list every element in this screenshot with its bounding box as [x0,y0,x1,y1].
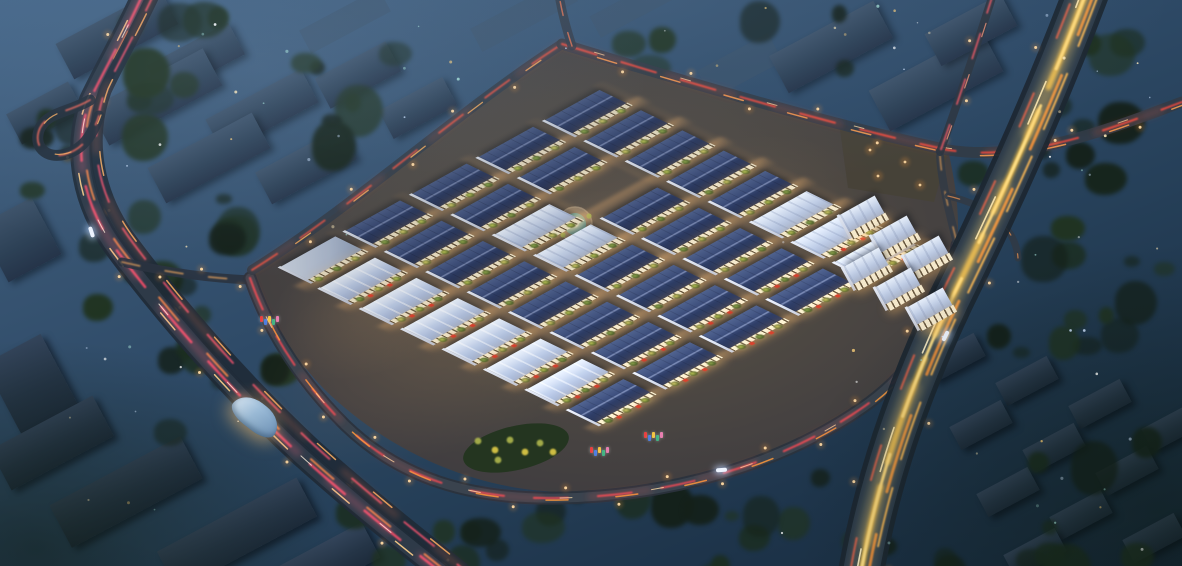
park-tree [703,189,715,195]
park-tree [437,336,449,342]
park-tree [549,145,561,151]
light-trail [85,0,452,566]
tree-canopy [486,539,509,561]
park-tree [482,182,494,188]
park-tree [561,397,573,403]
background-city-blocks [0,0,1182,566]
light-speck [1078,236,1080,238]
red-canopy [616,415,623,419]
background-building [256,522,381,566]
light-trail [250,245,957,498]
light-speck [237,421,239,423]
tree-canopy [122,114,168,160]
warehouse-building [769,268,850,311]
red-canopy [882,268,889,272]
flag [268,316,271,322]
road-surface [940,156,957,243]
street-lamp-glow [718,479,727,488]
light-speck [69,417,71,419]
tree-canopy [1124,256,1140,267]
light-trail [250,245,957,498]
park-tree [760,287,772,293]
tree-canopy [461,518,501,547]
background-building [922,333,985,383]
park-tree [754,333,766,339]
background-building [1122,513,1182,563]
street-lamp [906,330,909,333]
park-street-glow [419,157,775,354]
light-trail [81,0,448,566]
street-lamp [463,478,466,481]
street-lamp [1034,46,1037,49]
park-tree [391,276,403,282]
tree-canopy [291,53,321,73]
light-speck [404,116,406,118]
street-lamp [118,275,121,278]
park-tree [627,360,639,366]
park-tree [739,169,751,175]
tree-canopy [1051,216,1085,241]
connector-east [940,156,957,243]
street-lamp-glow [618,67,627,76]
park-tree [563,310,575,316]
tree-canopy [209,223,246,256]
light-trail [252,247,959,500]
tree-canopy [208,7,229,29]
warehouse-building [511,281,592,324]
tree-canopy [522,512,565,542]
red-canopy [552,364,559,368]
light-speck [263,102,265,104]
street-lamp [920,327,923,330]
red-canopy [682,378,689,382]
background-building [697,33,783,99]
multistory-building [537,224,618,267]
light-speck [1081,169,1083,171]
tree-canopy [471,96,512,139]
warehouse-building [429,241,510,284]
light-speck [128,345,131,348]
flatted-factory-building [321,258,402,301]
light-speck [403,67,406,70]
street-lamp-glow [924,419,933,428]
street-lamp-glow [985,278,994,287]
red-canopy [409,314,416,318]
light-speck [716,64,719,67]
flag [660,432,663,438]
street-lamp-glow [903,378,912,387]
light-trail [940,0,995,152]
street-lamp-glow [347,185,356,194]
park-tree [354,296,366,302]
background-building [0,395,114,490]
light-speck [1060,477,1063,480]
light-speck [1104,134,1107,137]
road-surface [558,0,572,46]
street-lamp-glow [100,98,109,107]
park-tree [331,266,343,272]
tree-canopy [262,353,301,386]
tree-canopy [1013,347,1030,358]
street-lamp-glow [105,206,114,215]
street-lamp-glow [155,273,164,282]
tree-canopy [1064,310,1087,330]
red-canopy [428,303,435,307]
park-tree [545,320,557,326]
boulevard-west-second [96,0,466,566]
street-lamp-glow [745,104,754,113]
street-lamp [1070,129,1073,132]
tree-canopy [1066,142,1096,168]
street-lamp [446,559,449,562]
park-tree [636,226,648,232]
tree-canopy [651,483,694,528]
tree-canopy [1098,102,1145,145]
park-tree [395,316,407,322]
highway-ramp-east [948,196,1018,258]
light-trail [942,0,997,153]
tree-canopy [128,93,152,109]
street-lamp-glow [903,327,912,336]
tree-canopy [1077,32,1101,56]
park-tree [797,266,809,272]
tree-canopy [536,497,566,526]
warehouse-building [686,228,767,271]
light-trail [96,0,463,566]
light-speck [449,61,452,64]
light-trail [561,42,1181,151]
tree-canopy [1049,326,1080,360]
street-lamp [689,72,692,75]
flag [648,435,651,441]
light-speck [159,143,162,146]
light-speck [852,349,855,352]
light-speck [1095,373,1098,376]
park-tree [620,149,632,155]
east-multistory-building [908,288,953,325]
tree-canopy [1021,236,1067,283]
park-tree [515,336,527,342]
street-light-glow [197,128,743,532]
street-lamp [260,329,263,332]
red-canopy [533,375,540,379]
flag [602,450,605,456]
park-tree [820,297,832,303]
light-trail [558,0,572,46]
park-tree [414,306,426,312]
tree-canopy [743,496,780,538]
tree-canopy [335,85,383,137]
tree-canopy [935,555,966,566]
park-tree [588,253,600,259]
park-tree [455,326,467,332]
flag [652,432,655,438]
street-lamp-glow [917,324,926,333]
street-lamp [305,363,308,366]
tree-canopy [1073,337,1102,356]
park-street-glow [527,117,872,286]
plaza-tree [560,232,565,237]
flatted-factory-building [362,278,443,321]
edge-road-northeast [561,42,1182,156]
street-lamp-glow [63,153,72,162]
light-trail [252,44,562,270]
park-tree [845,240,857,246]
background-building [205,69,318,153]
light-speck [346,234,348,236]
flag [264,319,267,325]
light-trail [860,0,1089,566]
vehicle [716,468,727,473]
vehicle [941,330,949,342]
park-tree [735,344,747,350]
light-speck [1089,174,1091,176]
street-lamp-glow [816,440,825,449]
street-lamp [764,447,767,450]
light-speck [764,7,766,9]
warehouse-building [412,164,493,207]
warehouse-building [454,184,535,227]
light-speck [135,411,137,413]
park-tree [349,255,361,261]
park-tree [623,320,635,326]
tree-canopy [1016,549,1047,566]
street-lamp-glow [663,472,672,481]
street-lamp [1054,139,1057,142]
park-ground [250,44,958,492]
multistory-building [752,191,833,234]
park-tree [604,330,616,336]
light-speck [1040,440,1042,442]
warehouse-grid [258,16,1100,457]
park-tree [480,269,492,275]
red-canopy [707,321,714,325]
park-tree [445,202,457,208]
garden-tree [475,438,482,445]
road-surface [940,0,995,152]
light-speck [86,347,88,349]
park-tree [503,300,515,306]
park-tree [602,417,614,423]
light-trail [81,0,448,566]
park-tree [505,212,517,218]
tree-canopy [811,469,830,487]
tree-canopy [123,48,169,99]
street-lamp [178,306,181,309]
light-trail [77,0,444,566]
park-tree [553,185,565,191]
background-building [56,0,179,79]
street-lamp-glow [348,478,357,487]
light-trail [940,156,957,243]
tree-canopy [1085,163,1127,195]
park-tree [462,279,474,285]
park-tree [464,192,476,198]
park-tree [597,118,609,124]
red-canopy [834,294,841,298]
street-lamp-glow [405,477,414,486]
light-speck [1036,504,1039,507]
background-building [1141,402,1182,452]
light-speck [1069,329,1072,332]
park-tree [698,148,710,154]
light-speck [104,358,107,361]
background-building [976,467,1039,517]
park-tree [578,128,590,134]
street-lamp [876,141,879,144]
tree-canopy [1089,34,1135,77]
background-building [1003,528,1066,566]
street-lamp-glow [849,477,858,486]
tree-canopy [219,215,258,254]
parking-lamp-glow [900,157,910,167]
red-canopy [793,274,800,278]
toll-gate-canopy [227,389,285,443]
park-street-glow [394,191,739,360]
street-lamp-glow [850,396,859,405]
park-tree [572,175,584,181]
street-lamp-glow [561,483,570,492]
warehouse-building [545,90,626,133]
light-speck [393,219,395,221]
background-building [0,198,62,283]
street-lamp [106,33,109,36]
background-building [157,477,317,566]
road-surface [948,196,1018,258]
tree-canopy [379,42,413,66]
park-tree [416,218,428,224]
flag [644,432,647,438]
street-lamp [512,505,515,508]
tree-canopy [170,72,199,98]
street-lamp [322,415,325,418]
light-trail [867,0,1096,566]
ground-roads-svg [0,0,1182,566]
street-lamp-glow [1136,123,1145,132]
street-lamp-glow [282,457,291,466]
street-lamp [380,542,383,545]
tree-canopy [571,491,585,504]
background-building [1068,379,1131,429]
street-lamp-glow [319,412,328,421]
street-lamp-glow [1006,156,1015,165]
warehouse-building [727,248,808,291]
background-building [147,23,245,98]
tree-canopy [725,511,740,521]
tree-canopy [987,324,1011,349]
tree-canopy [193,306,211,324]
flag [276,316,279,322]
plaza-tree [584,233,589,238]
park-tree [379,239,391,245]
light-speck [716,272,718,274]
tree-canopy [213,218,245,250]
park-street-glow [336,116,693,313]
park-tree [496,346,508,352]
red-canopy [386,283,393,287]
street-lamp-glow [302,360,311,369]
tree-canopy [372,546,406,566]
street-lamp [285,460,288,463]
park-tree [664,340,676,346]
street-lamp [853,399,856,402]
park-tree [556,357,568,363]
red-canopy [660,348,667,352]
road-surface [38,100,99,155]
tree-canopy [60,145,78,161]
tree-canopy [832,5,847,22]
background-building [379,77,458,139]
park-tree [638,138,650,144]
light-speck [1156,247,1158,249]
background-building [925,0,1018,66]
light-speck [1104,488,1106,490]
street-lamp [748,107,751,110]
park-tree [652,303,664,309]
park-tree [772,323,784,329]
light-speck [307,158,310,161]
tree-canopy [173,276,197,296]
red-canopy [768,331,775,335]
street-lamp-glow [1067,126,1076,135]
street-lamp-glow [443,556,452,565]
street-lamp-glow [969,185,978,194]
light-speck [1141,548,1144,551]
park-tree [687,370,699,376]
tree-canopy [433,520,454,544]
tree-canopy [310,61,325,75]
park-tree [547,232,559,238]
parking-lamp [919,184,922,187]
background-building [949,400,1012,450]
light-speck [876,5,879,8]
parking-lamp [877,175,880,178]
light-speck [126,165,128,167]
multistory-building [495,204,576,247]
light-speck [565,47,567,49]
warehouse-building [553,302,634,345]
street-lamp [451,110,454,113]
light-trail [948,196,1018,258]
light-speck [202,33,205,36]
tree-canopy [158,3,201,43]
red-canopy [901,257,908,261]
light-speck [928,316,930,318]
flag [606,447,609,453]
street-lamp-glow [448,107,457,116]
warehouse-building [603,188,684,231]
tree-canopy [447,545,480,566]
park-tree [696,236,708,242]
tree-canopy [461,522,482,542]
red-canopy [593,384,600,388]
park-street-glow [585,238,942,435]
tree-canopy [261,355,290,385]
street-lamp-glow [377,539,386,548]
warehouse-building [670,151,751,194]
tree-canopy [1036,145,1050,160]
red-canopy [701,368,708,372]
tree-canopy [1043,162,1060,178]
street-lamp-glow [236,282,245,291]
park-tree [762,199,774,205]
background-building [1095,446,1158,496]
light-speck [883,428,885,430]
background-building [1022,423,1085,473]
park-tree [570,263,582,269]
light-speck [1035,254,1037,256]
street-lamp [617,503,620,506]
